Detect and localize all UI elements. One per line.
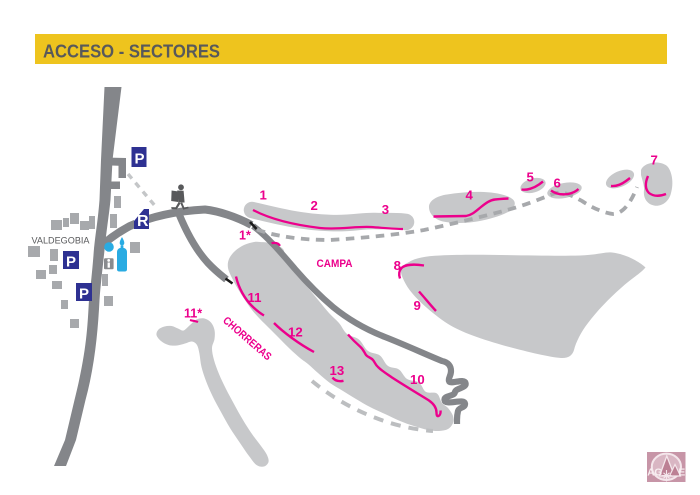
- svg-text:1: 1: [260, 187, 267, 202]
- svg-text:6: 6: [554, 176, 561, 191]
- svg-text:E: E: [679, 468, 686, 479]
- svg-text:P: P: [135, 151, 145, 168]
- svg-text:8: 8: [394, 258, 401, 273]
- svg-text:P: P: [66, 254, 76, 271]
- svg-text:11: 11: [248, 290, 262, 305]
- svg-text:P: P: [79, 286, 89, 303]
- svg-text:4: 4: [466, 188, 474, 203]
- svg-text:12: 12: [288, 325, 303, 340]
- svg-text:VALDEGOBIA: VALDEGOBIA: [32, 236, 91, 247]
- svg-text:2: 2: [311, 198, 318, 213]
- svg-text:5: 5: [527, 170, 534, 185]
- svg-text:AG: AG: [647, 468, 662, 479]
- svg-text:9: 9: [414, 298, 421, 313]
- svg-text:11*: 11*: [184, 307, 202, 321]
- svg-text:R: R: [137, 213, 149, 230]
- svg-text:13: 13: [330, 363, 345, 378]
- svg-text:ACCESO - SECTORES: ACCESO - SECTORES: [43, 41, 220, 62]
- svg-text:10: 10: [410, 372, 425, 387]
- svg-text:1*: 1*: [239, 229, 251, 243]
- svg-text:7: 7: [651, 153, 658, 168]
- svg-text:CAMPA: CAMPA: [317, 258, 353, 270]
- svg-text:3: 3: [382, 202, 389, 217]
